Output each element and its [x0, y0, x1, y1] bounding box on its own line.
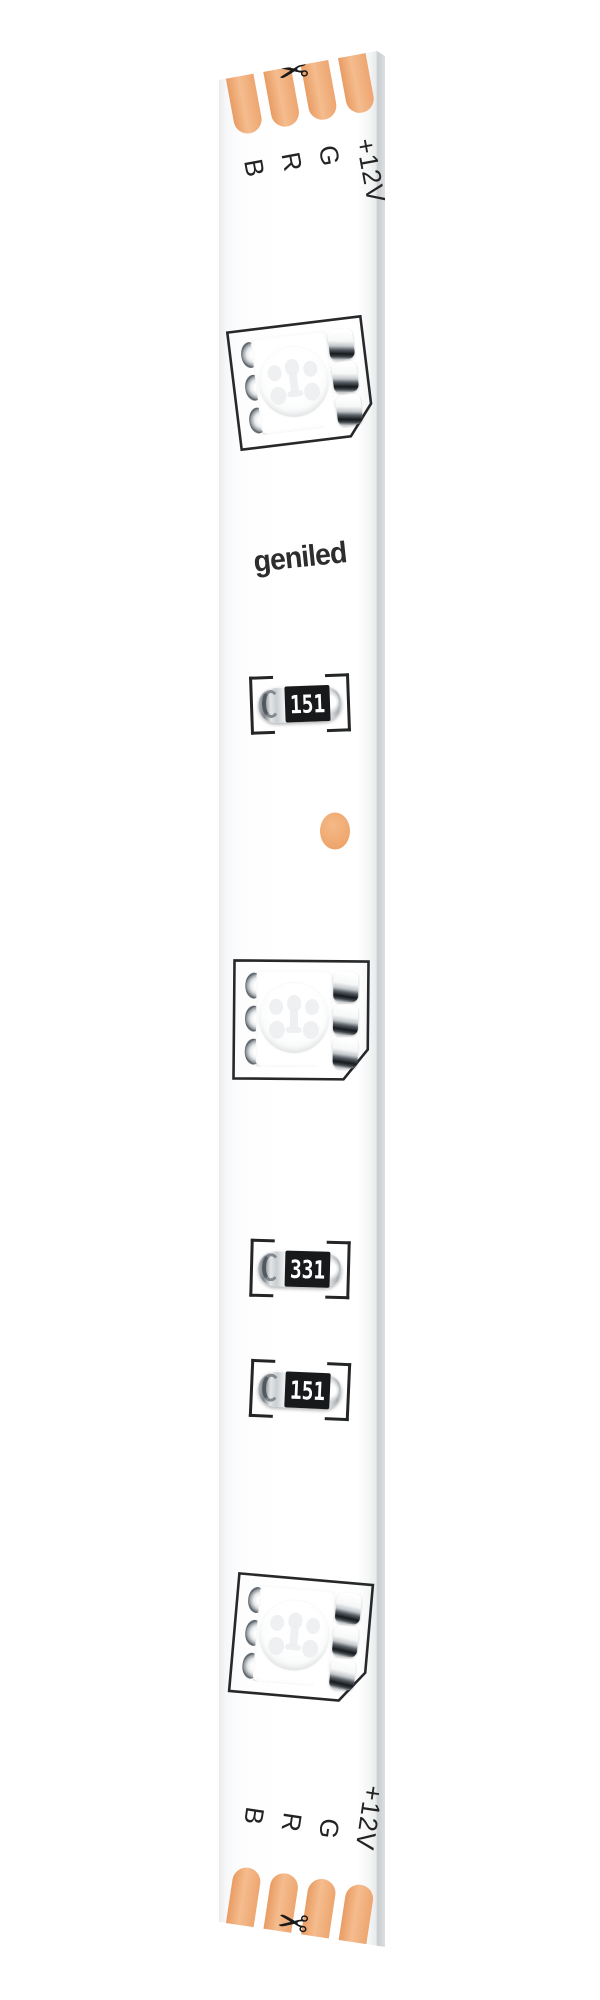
resistor-code-plate: 331 [285, 1251, 331, 1288]
pin-label-r: R [277, 1811, 306, 1834]
led-dome-lens [256, 1597, 332, 1673]
resistor-code: 331 [290, 1256, 326, 1282]
top-terminal: B R G +12V [219, 51, 405, 247]
resistor-body: 331 [258, 1250, 343, 1288]
led-right-pad [334, 1592, 362, 1625]
copper-pad [337, 47, 376, 115]
led-right-pad [333, 971, 358, 1002]
pin-label-r: R [277, 150, 306, 174]
led-right-pad [332, 1625, 360, 1658]
led-module [231, 958, 370, 1081]
led-right-pad [335, 393, 364, 427]
solder-dot [320, 813, 350, 850]
copper-pad [225, 1866, 262, 1933]
scissors-icon: ✂ [274, 49, 312, 92]
led-dome-lens [259, 983, 330, 1054]
led-module [225, 314, 377, 452]
resistor-body: 151 [257, 685, 342, 724]
led-right-pad [327, 327, 356, 361]
pin-label-g: G [315, 143, 344, 169]
resistor-body: 151 [257, 1370, 342, 1410]
resistor-code-plate: 151 [284, 1371, 331, 1409]
resistor: 331 [249, 1239, 350, 1300]
resistor: 151 [249, 1359, 351, 1421]
resistor: 151 [249, 673, 351, 734]
led-package [250, 330, 337, 436]
led-package [252, 1584, 336, 1687]
pin-label-b: B [240, 157, 269, 180]
led-strip-pcb: B R G +12V ✂ geniled [219, 51, 385, 1947]
product-image: B R G +12V ✂ geniled [0, 0, 600, 2000]
copper-pad [338, 1883, 375, 1950]
pin-label-g: G [315, 1817, 344, 1842]
resistor-code: 151 [289, 1377, 325, 1404]
resistor-code: 151 [289, 691, 325, 717]
led-module [227, 1571, 375, 1705]
copper-pad [225, 68, 264, 136]
brand-logo: geniled [252, 536, 348, 580]
led-right-pad [333, 1037, 358, 1068]
scissors-icon: ✂ [274, 1902, 311, 1944]
pin-label-12v: +12V [352, 136, 389, 205]
led-package [256, 970, 333, 1068]
led-right-pad [331, 360, 360, 394]
pin-label-b: B [240, 1805, 268, 1827]
led-right-pad [333, 1004, 358, 1035]
pin-label-12v: +12V [351, 1784, 386, 1853]
resistor-code-plate: 151 [284, 685, 330, 723]
led-dome-lens [255, 343, 333, 421]
led-right-pad [329, 1658, 357, 1691]
